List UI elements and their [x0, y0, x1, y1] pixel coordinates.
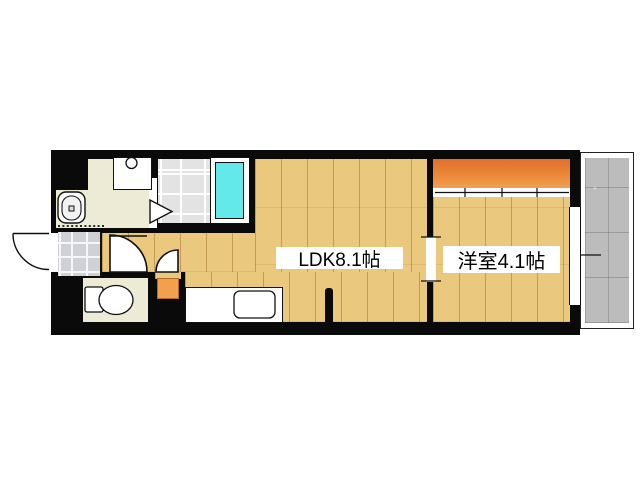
washbasin-icon — [58, 192, 85, 223]
toilet-icon — [85, 286, 133, 315]
hall-door-icon — [110, 235, 147, 272]
fixtures-overlay — [0, 0, 640, 480]
closet-sliding-door-icon — [435, 188, 569, 197]
doorway-ticks — [421, 237, 441, 281]
toilet-door-icon — [156, 250, 178, 272]
floorplan-canvas: LDK8.1帖 洋室4.1帖 — [0, 0, 640, 480]
entrance-door-icon — [13, 234, 49, 270]
kitchen-sink-icon — [234, 291, 275, 318]
faucet-icon — [126, 158, 137, 169]
bathroom-folding-door-icon — [150, 200, 172, 223]
